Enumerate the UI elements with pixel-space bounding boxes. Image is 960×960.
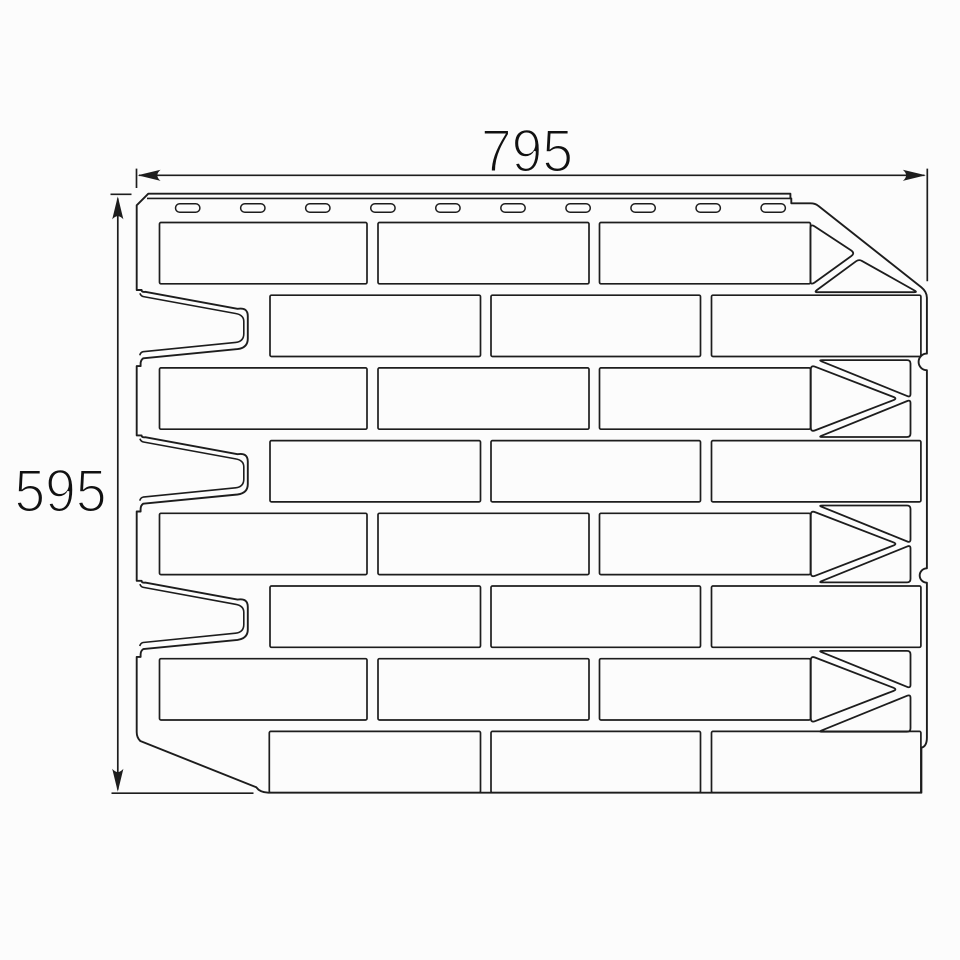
svg-text:595: 595 xyxy=(15,458,107,525)
svg-text:795: 795 xyxy=(481,118,573,185)
